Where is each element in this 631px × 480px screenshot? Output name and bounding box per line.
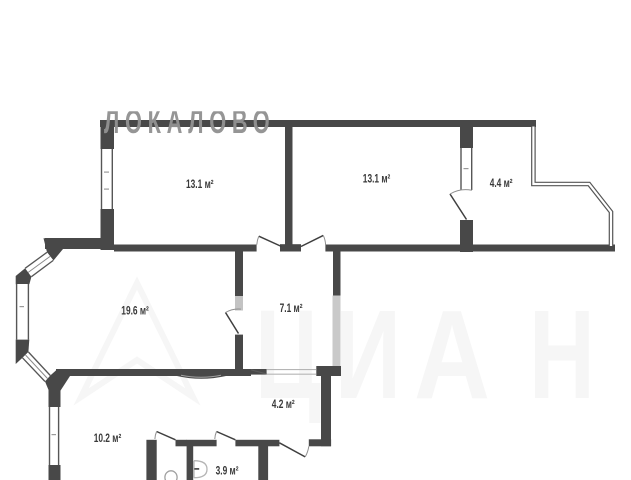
svg-text:4.2 м²: 4.2 м² xyxy=(272,397,295,411)
svg-text:10.2 м²: 10.2 м² xyxy=(94,431,122,445)
svg-text:4.4 м²: 4.4 м² xyxy=(490,176,513,190)
svg-text:7.1 м²: 7.1 м² xyxy=(280,301,303,315)
svg-text:13.1 м²: 13.1 м² xyxy=(186,177,214,191)
svg-text:Н: Н xyxy=(529,284,595,425)
svg-text:А: А xyxy=(414,284,490,425)
svg-text:3.9 м²: 3.9 м² xyxy=(216,464,239,478)
svg-text:19.6 м²: 19.6 м² xyxy=(121,304,149,318)
svg-text:И: И xyxy=(335,284,401,425)
svg-text:13.1 м²: 13.1 м² xyxy=(363,172,391,186)
